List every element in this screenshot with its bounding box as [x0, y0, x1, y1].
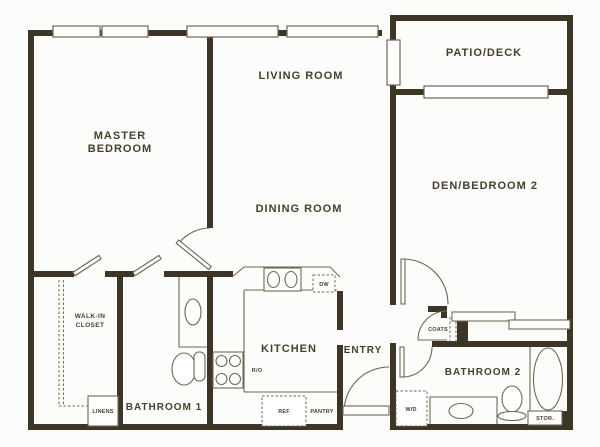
walk-in-closet-door-leaf [73, 255, 101, 275]
wall-master-south-2 [105, 271, 134, 277]
bathroom2-toilet-base [498, 412, 526, 421]
label-walk-in-closet-line1: WALK-IN [75, 313, 106, 320]
label-master-bedroom-line1: MASTER [94, 130, 146, 142]
label-walk-in-closet-line2: CLOSET [76, 322, 105, 329]
label-dining-room: DINING ROOM [256, 203, 343, 215]
window-patio-slider [387, 40, 400, 85]
wall-bath2-north [432, 341, 570, 347]
bathtub-alcove [530, 347, 562, 411]
bathroom1-vanity [179, 277, 207, 347]
bathroom1-toilet-bowl [172, 353, 196, 385]
entry-door-arc [344, 367, 389, 412]
walk-in-closet-fixtures [59, 280, 88, 406]
wall-master-south-1 [28, 271, 74, 277]
wall-left [28, 30, 34, 430]
window-living-2 [287, 26, 378, 37]
window-den-patio [424, 86, 548, 98]
windows [53, 26, 548, 98]
window-master-1 [53, 26, 100, 37]
bathroom1-door-leaf [133, 255, 161, 275]
wall-entry-bath2-divider [390, 343, 396, 430]
label-master-bedroom-line2: BEDROOM [88, 143, 152, 155]
label-bathroom2: BATHROOM 2 [445, 367, 521, 378]
window-living-1 [187, 26, 278, 37]
wall-den-door-stub2 [441, 306, 447, 318]
den-closet-slider-panel-1 [452, 312, 515, 321]
window-master-2 [102, 26, 148, 37]
master-door-arc [179, 228, 210, 243]
room-labels: MASTER BEDROOM LIVING ROOM DINING ROOM P… [75, 47, 554, 422]
wall-dining-kitchen-stub [213, 271, 233, 277]
label-pantry: PANTRY [310, 409, 333, 415]
wall-master-living-divider [207, 30, 213, 228]
wall-patio-top [390, 15, 573, 21]
bathroom2-door-arc [402, 347, 432, 377]
floor-plan: MASTER BEDROOM LIVING ROOM DINING ROOM P… [0, 0, 600, 447]
label-living-room: LIVING ROOM [259, 70, 344, 82]
wall-stor-post [562, 411, 573, 425]
label-bathroom1: BATHROOM 1 [126, 402, 202, 413]
label-patio-deck: PATIO/DECK [446, 47, 522, 59]
wall-master-south-3 [164, 271, 213, 277]
wall-bath1-east [207, 271, 213, 430]
label-range-oven: R/O [252, 368, 263, 374]
label-den-bedroom2: DEN/BEDROOM 2 [432, 180, 538, 192]
label-entry: ENTRY [344, 345, 383, 356]
label-washer-dryer: W/D [405, 407, 416, 413]
bathroom2-door-leaf [400, 347, 404, 377]
wall-kitchen-entry-upper [337, 291, 343, 330]
bathroom1-sink [185, 299, 201, 325]
bathroom2-sink [449, 404, 473, 419]
bathroom1-toilet-tank [194, 352, 205, 381]
den-door-leaf [401, 259, 405, 304]
wall-kitchen-entry-lower [337, 345, 343, 430]
entry-door-leaf [343, 406, 389, 415]
label-kitchen: KITCHEN [261, 343, 317, 355]
kitchen-sink [264, 268, 301, 291]
wall-right [567, 15, 573, 430]
bathroom2-vanity [430, 397, 497, 424]
bathtub [534, 348, 563, 410]
bathroom2-toilet-bowl [502, 386, 522, 412]
bathroom2-fixtures [430, 347, 563, 425]
master-door-leaf [176, 240, 211, 270]
den-closet-slider-panel-2 [509, 320, 570, 329]
den-door-arc [403, 259, 448, 304]
label-coats: COATS [428, 327, 448, 333]
label-storage: STOR. [536, 416, 554, 422]
label-dishwasher: DW [319, 282, 329, 288]
label-linens: LINENS [92, 409, 113, 415]
floor-plan-drawing: MASTER BEDROOM LIVING ROOM DINING ROOM P… [0, 0, 600, 447]
label-refrigerator: REF [278, 409, 290, 415]
